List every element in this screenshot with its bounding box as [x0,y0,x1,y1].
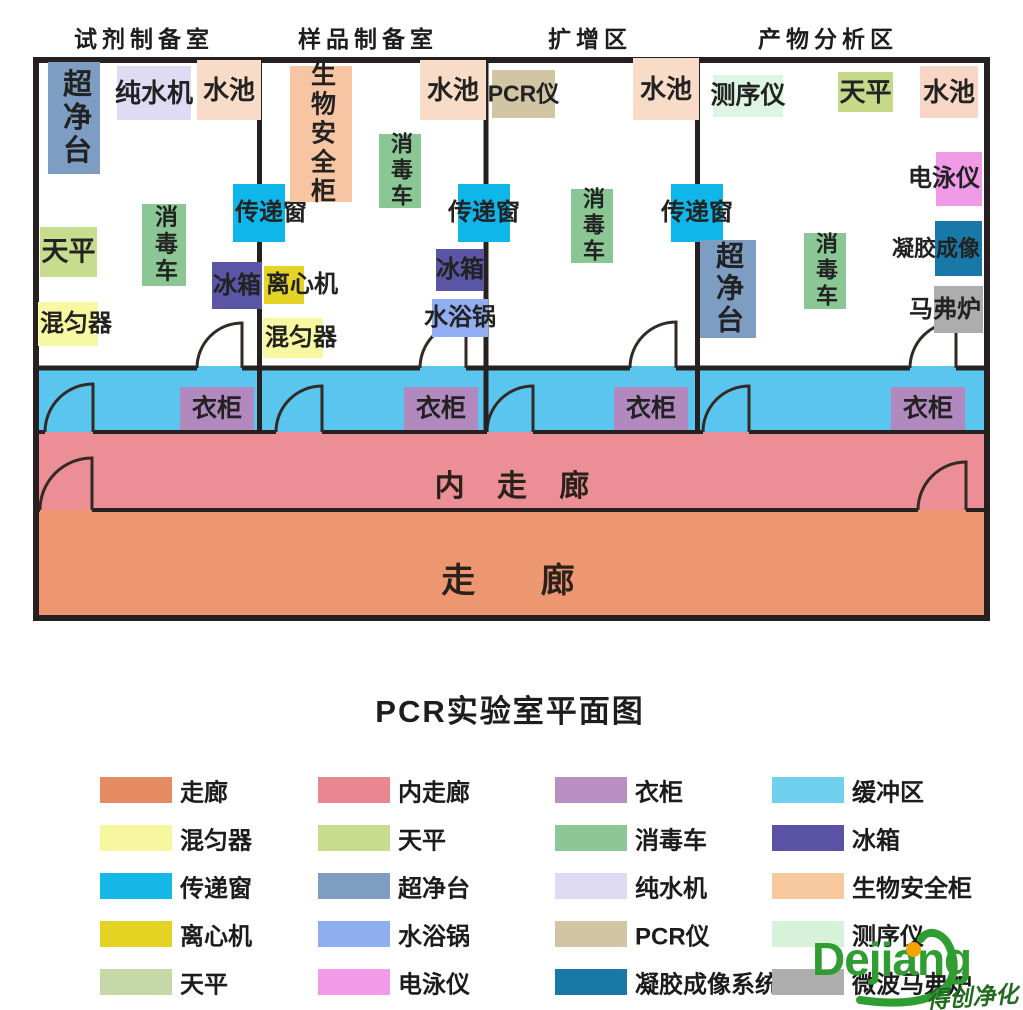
legend-item-fridge: 冰箱 [772,825,1023,851]
equipment-clean-bench-2: 超净台 [700,240,756,338]
equipment-disinfect-cart-3: 消毒车 [571,189,613,263]
equipment-fridge-2: 冰箱 [436,249,484,291]
equipment-biosafety-cabinet: 生物安全柜 [290,66,352,202]
equipment-label-wardrobe-4: 衣柜 [903,396,953,421]
equipment-label-fridge-1: 冰箱 [213,274,261,298]
equipment-centrifuge: 离心机 [264,266,304,304]
room-header-sample-prep-room: 样品制备室 [298,20,438,54]
equipment-label-wardrobe-1: 衣柜 [192,396,242,421]
buffer-zone-area [36,366,985,434]
equipment-label-fridge-2: 冰箱 [436,258,484,282]
equipment-mixer-2: 混匀器 [263,318,323,358]
equipment-label-sink-3: 水池 [640,76,692,102]
equipment-label-pass-box-1: 传递窗 [235,201,307,225]
equipment-label-water-bath: 水浴锅 [424,306,496,330]
equipment-label-balance-1: 天平 [42,239,96,266]
equipment-balance-1: 天平 [40,227,97,277]
equipment-sink-2: 水池 [420,60,486,120]
legend-item-inner-corridor: 内走廊 [318,777,578,803]
equipment-label-balance-2: 天平 [839,79,891,105]
legend-swatch-wardrobe [555,777,627,803]
legend-label-electrophoresis: 电泳仪 [398,965,470,1000]
equipment-label-clean-bench-2: 超净台 [714,241,742,337]
legend-item-balance: 天平 [318,825,578,851]
equipment-label-mixer-2: 混匀器 [265,326,337,350]
legend-label-centrifuge: 离心机 [180,917,252,952]
equipment-label-disinfect-cart-4: 消毒车 [814,232,836,310]
logo-dot-icon [906,942,921,957]
equipment-label-sink-4: 水池 [923,79,975,105]
legend-swatch-corridor [100,777,172,803]
equipment-disinfect-cart-1: 消毒车 [142,204,186,286]
equipment-label-disinfect-cart-1: 消毒车 [153,205,176,286]
legend-swatch-buffer-zone [772,777,844,803]
equipment-sink-4: 水池 [920,66,978,118]
equipment-sink-3: 水池 [633,58,699,120]
equipment-label-biosafety-cabinet: 生物安全柜 [309,62,334,207]
legend-swatch-electrophoresis [318,969,390,995]
equipment-label-wardrobe-2: 衣柜 [416,396,466,421]
equipment-gel-imaging: 凝胶成像 [935,221,982,276]
equipment-electrophoresis: 电泳仪 [936,152,982,206]
equipment-sink-1: 水池 [197,60,261,120]
legend-swatch-water-purifier [555,873,627,899]
equipment-balance-2: 天平 [838,72,893,112]
legend-swatch-centrifuge [100,921,172,947]
legend-swatch-clean-bench [318,873,390,899]
legend-swatch-biosafety-cabinet [772,873,844,899]
equipment-muffle-furnace: 马弗炉 [934,286,983,333]
legend-item-clean-bench: 超净台 [318,873,578,899]
legend-label-pcr-machine: PCR仪 [635,917,710,952]
legend-swatch-balance-alt [100,969,172,995]
inner-corridor-label: 内 走 廊 [435,461,590,505]
brand-logo: Dejiang 得创净化 [790,918,1023,1010]
legend-label-balance-alt: 天平 [180,965,228,1000]
legend-swatch-pcr-machine [555,921,627,947]
legend-item-buffer-zone: 缓冲区 [772,777,1023,803]
legend-label-buffer-zone: 缓冲区 [852,773,924,808]
equipment-wardrobe-2: 衣柜 [404,387,478,430]
door [630,322,676,368]
legend-swatch-water-bath [318,921,390,947]
corridor-label: 走 廊 [441,553,574,602]
equipment-label-gel-imaging: 凝胶成像 [892,238,980,260]
brand-name: Dejiang [812,932,971,986]
equipment-pass-box-3: 传递窗 [671,184,723,242]
equipment-label-centrifuge: 离心机 [266,273,338,297]
equipment-label-pass-box-3: 传递窗 [661,201,733,225]
legend-swatch-pass-box [100,873,172,899]
equipment-clean-bench-1: 超净台 [48,62,100,174]
legend-label-pass-box: 传递窗 [180,869,252,904]
legend-label-gel-imaging-system: 凝胶成像系统 [635,965,779,1000]
legend-item-electrophoresis: 电泳仪 [318,969,578,995]
legend-label-biosafety-cabinet: 生物安全柜 [852,869,972,904]
equipment-sequencer: 测序仪 [713,75,783,117]
equipment-water-bath: 水浴锅 [432,299,488,337]
legend-swatch-disinfect-cart [555,825,627,851]
brand-tagline: 得创净化 [925,975,1019,1010]
room-header-product-analysis-area: 产物分析区 [758,20,898,54]
equipment-disinfect-cart-2: 消毒车 [379,134,421,208]
legend-swatch-fridge [772,825,844,851]
pcr-lab-floorplan-page: 试剂制备室样品制备室扩增区产物分析区 超净台纯水机水池传递窗消毒车天平冰箱混匀器… [0,0,1023,1010]
legend-label-inner-corridor: 内走廊 [398,773,470,808]
equipment-wardrobe-3: 衣柜 [614,387,688,430]
equipment-label-pass-box-2: 传递窗 [448,201,520,225]
equipment-pass-box-2: 传递窗 [458,184,510,242]
legend-label-clean-bench: 超净台 [398,869,470,904]
door [197,323,242,368]
equipment-disinfect-cart-4: 消毒车 [804,233,846,309]
legend-label-mixer: 混匀器 [180,821,252,856]
page-title: PCR实验室平面图 [375,686,644,731]
equipment-label-pcr-machine: PCR仪 [488,83,560,106]
legend-swatch-gel-imaging-system [555,969,627,995]
equipment-label-sink-2: 水池 [427,77,479,103]
equipment-wardrobe-4: 衣柜 [891,387,965,430]
equipment-label-disinfect-cart-2: 消毒车 [389,132,411,210]
legend-swatch-inner-corridor [318,777,390,803]
legend-label-water-bath: 水浴锅 [398,917,470,952]
legend-label-fridge: 冰箱 [852,821,900,856]
equipment-fridge-1: 冰箱 [212,262,262,309]
legend-label-disinfect-cart: 消毒车 [635,821,707,856]
equipment-label-clean-bench-1: 超净台 [60,69,89,168]
equipment-pass-box-1: 传递窗 [233,184,285,242]
legend-label-corridor: 走廊 [180,773,228,808]
legend-item-biosafety-cabinet: 生物安全柜 [772,873,1023,899]
equipment-wardrobe-1: 衣柜 [180,387,254,430]
legend-label-balance: 天平 [398,821,446,856]
equipment-label-sink-1: 水池 [203,77,255,103]
room-header-reagent-prep-room: 试剂制备室 [74,20,214,54]
equipment-label-sequencer: 测序仪 [710,84,785,109]
equipment-mixer-1: 混匀器 [38,302,98,346]
legend-label-wardrobe: 衣柜 [635,773,683,808]
equipment-water-purifier: 纯水机 [117,66,191,120]
equipment-label-mixer-1: 混匀器 [40,312,112,336]
room-header-amplification-area: 扩增区 [548,20,632,54]
legend-label-water-purifier: 纯水机 [635,869,707,904]
legend-item-water-bath: 水浴锅 [318,921,578,947]
equipment-label-disinfect-cart-3: 消毒车 [581,187,603,265]
legend-swatch-balance [318,825,390,851]
equipment-label-wardrobe-3: 衣柜 [626,396,676,421]
legend-swatch-mixer [100,825,172,851]
equipment-label-electrophoresis: 电泳仪 [908,167,980,191]
equipment-pcr-machine: PCR仪 [492,70,555,118]
equipment-label-water-purifier: 纯水机 [115,80,193,106]
equipment-label-muffle-furnace: 马弗炉 [909,298,981,322]
